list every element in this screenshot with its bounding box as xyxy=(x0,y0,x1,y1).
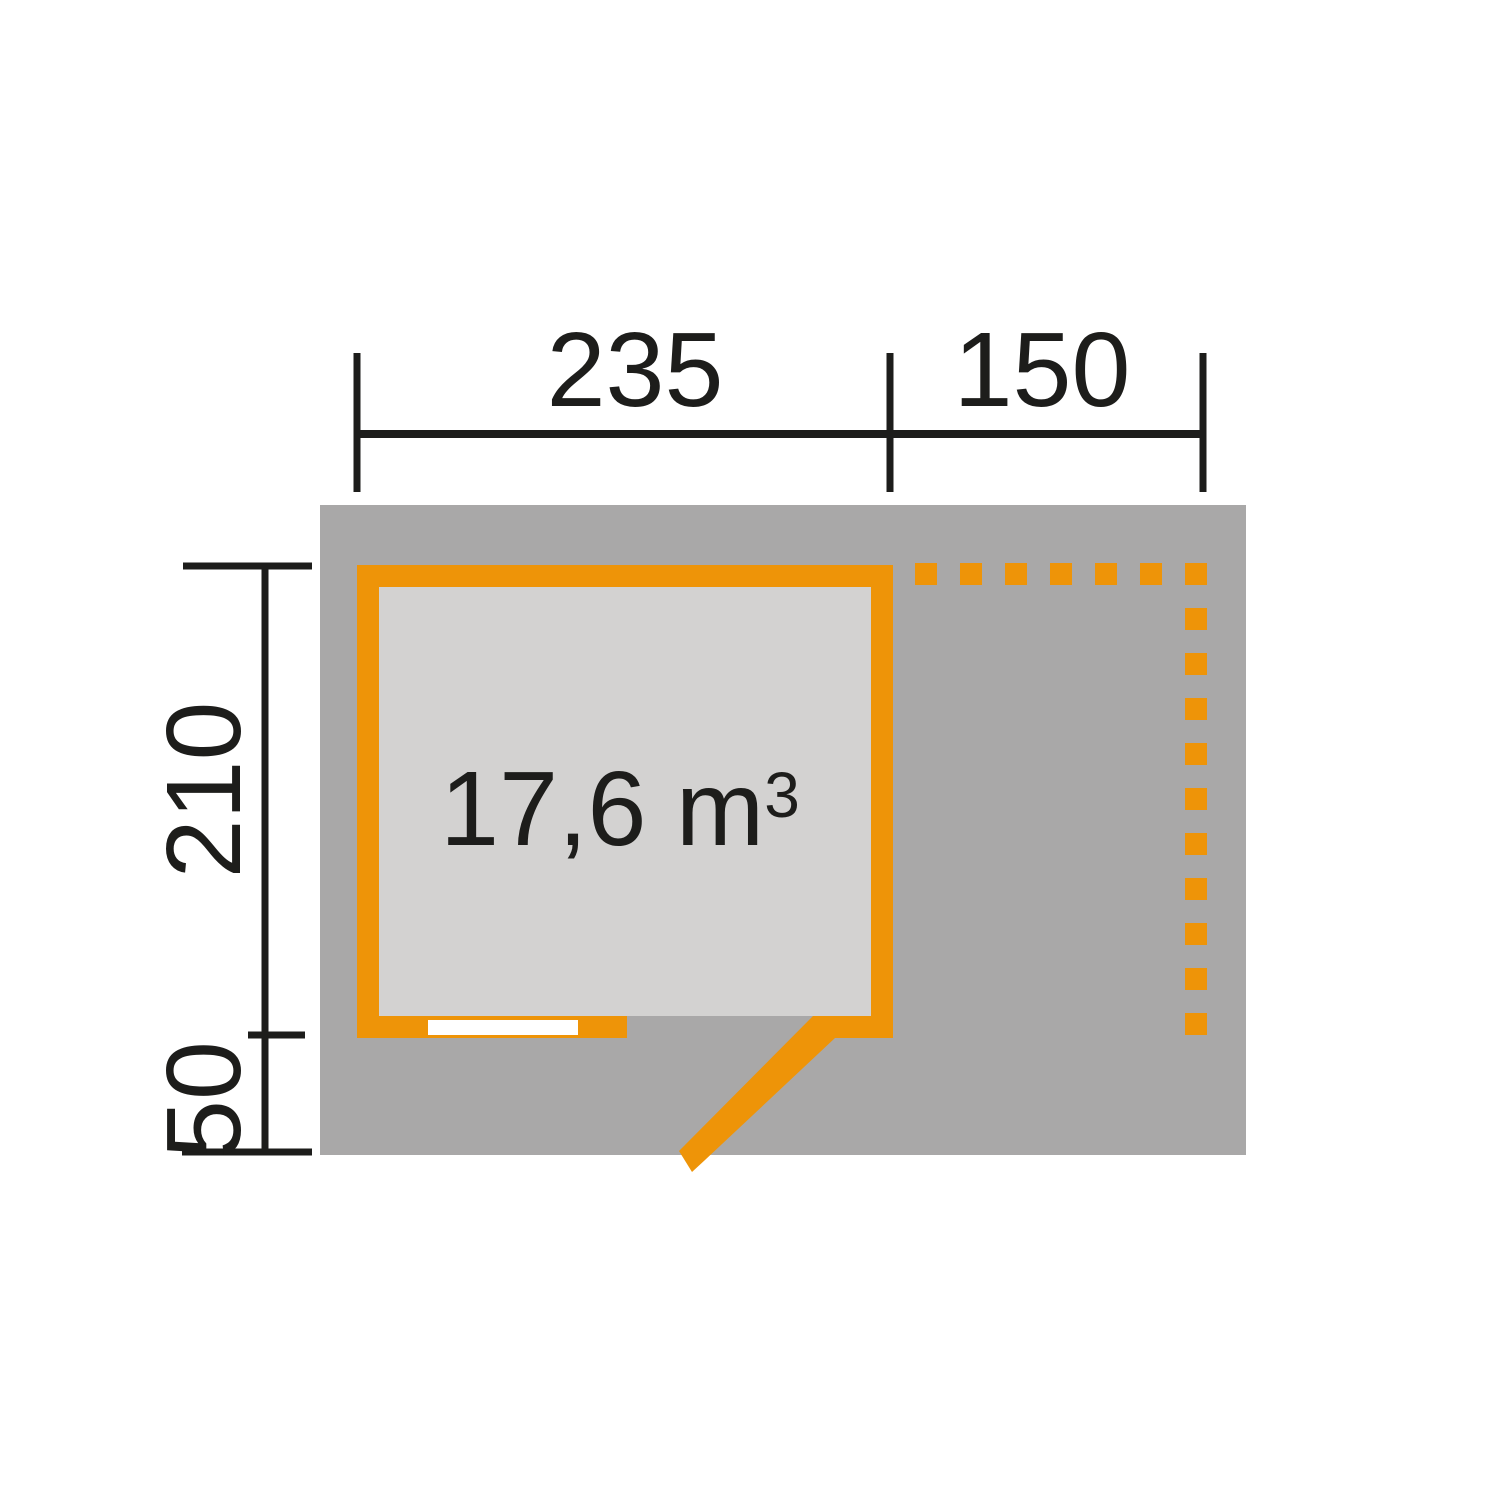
dim-label-depth-annex: 50 xyxy=(145,1041,263,1159)
door-opening xyxy=(627,1016,813,1038)
window xyxy=(428,1020,578,1035)
dim-label-depth-main: 210 xyxy=(145,702,263,879)
floor-plan-canvas: 235 150 210 50 17,6 m3 xyxy=(0,0,1500,1500)
volume-value: 17,6 m xyxy=(440,750,764,868)
floor-plan-page: 235 150 210 50 17,6 m3 xyxy=(0,0,1500,1500)
dim-label-width-annex: 150 xyxy=(954,311,1131,429)
volume-label: 17,6 m3 xyxy=(440,750,800,868)
volume-superscript: 3 xyxy=(764,759,800,831)
dim-label-width-main: 235 xyxy=(547,311,724,429)
